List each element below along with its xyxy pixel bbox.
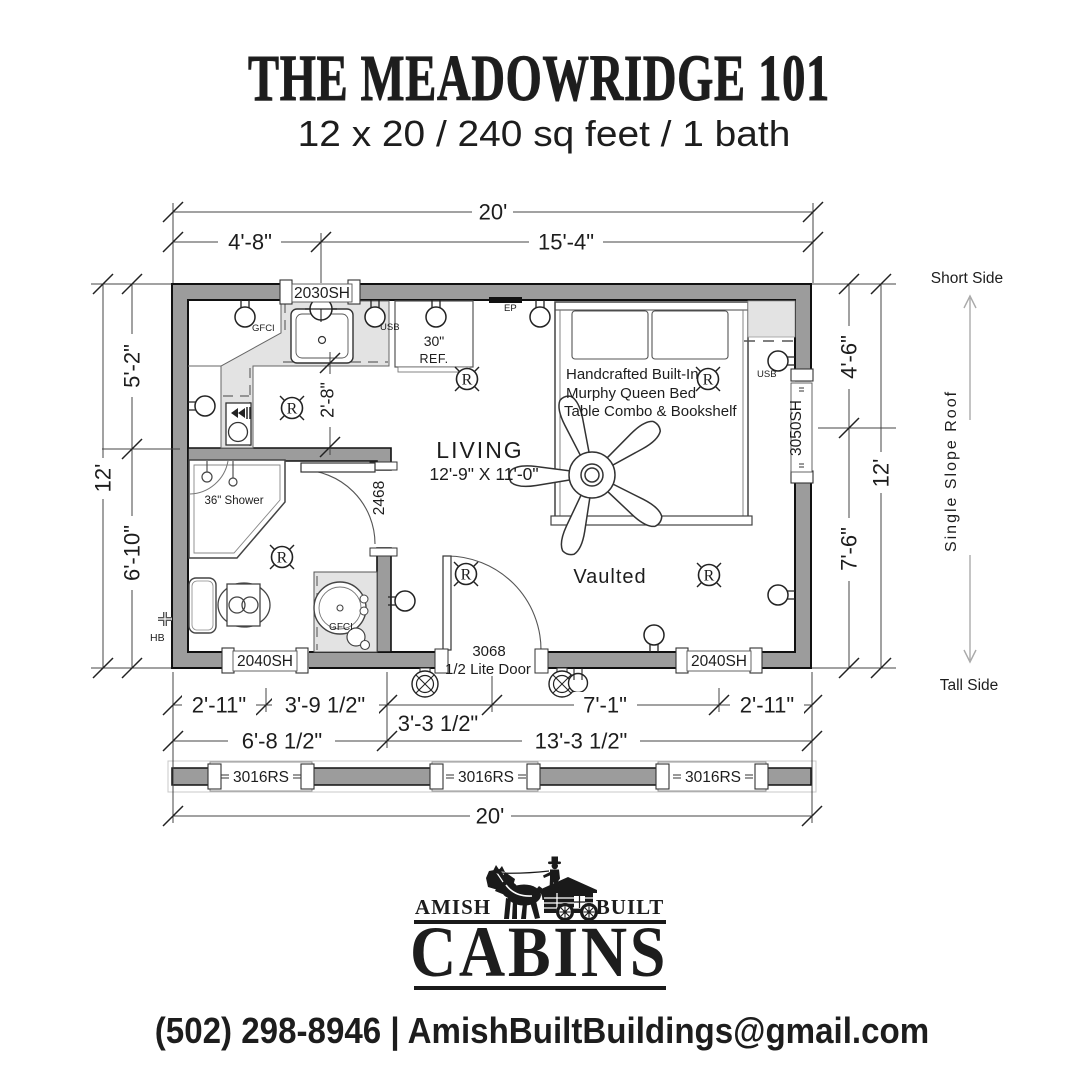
svg-text:3016RS: 3016RS <box>685 769 741 786</box>
svg-text:5'-2": 5'-2" <box>120 344 145 388</box>
svg-text:6'-8 1/2": 6'-8 1/2" <box>242 729 323 754</box>
svg-text:CABINS: CABINS <box>410 912 668 992</box>
svg-text:7'-1": 7'-1" <box>583 693 627 718</box>
svg-text:USB: USB <box>757 369 777 380</box>
svg-text:R: R <box>277 550 288 567</box>
svg-text:13'-3 1/2": 13'-3 1/2" <box>535 729 628 754</box>
svg-text:Murphy Queen Bed: Murphy Queen Bed <box>566 385 696 402</box>
svg-text:6'-10": 6'-10" <box>120 525 145 581</box>
svg-text:1/2 Lite Door: 1/2 Lite Door <box>445 661 531 678</box>
svg-text:Table Combo & Bookshelf: Table Combo & Bookshelf <box>564 403 737 420</box>
svg-text:3'-9 1/2": 3'-9 1/2" <box>285 693 366 718</box>
svg-text:20': 20' <box>476 804 505 829</box>
svg-text:20': 20' <box>479 200 508 225</box>
svg-text:USB: USB <box>380 322 400 333</box>
svg-text:THE MEADOWRIDGE 101: THE MEADOWRIDGE 101 <box>248 42 830 115</box>
svg-text:Single Slope Roof: Single Slope Roof <box>943 390 960 552</box>
svg-text:HB: HB <box>150 632 165 644</box>
svg-text:4'-6": 4'-6" <box>837 335 862 379</box>
svg-text:Tall Side: Tall Side <box>940 677 999 694</box>
svg-text:R: R <box>703 372 714 389</box>
svg-text:GFCI: GFCI <box>252 323 275 334</box>
svg-text:12': 12' <box>869 459 894 488</box>
svg-text:R: R <box>462 372 473 389</box>
svg-text:3016RS: 3016RS <box>233 769 289 786</box>
svg-text:12': 12' <box>91 464 116 493</box>
svg-text:3050SH: 3050SH <box>788 400 805 456</box>
svg-text:LIVING: LIVING <box>436 437 523 463</box>
svg-text:Short Side: Short Side <box>931 270 1003 287</box>
svg-text:12 x 20 / 240 sq feet / 1 bath: 12 x 20 / 240 sq feet / 1 bath <box>298 113 791 153</box>
svg-text:4'-8": 4'-8" <box>228 230 272 255</box>
svg-text:2'-11": 2'-11" <box>740 693 794 718</box>
svg-text:Vaulted: Vaulted <box>573 566 646 588</box>
svg-text:15'-4": 15'-4" <box>538 230 594 255</box>
svg-text:7'-6": 7'-6" <box>837 527 862 571</box>
svg-text:2040SH: 2040SH <box>237 653 293 670</box>
svg-text:R: R <box>287 401 298 418</box>
svg-text:2030SH: 2030SH <box>294 285 350 302</box>
svg-text:2'-8": 2'-8" <box>317 382 337 418</box>
svg-text:3068: 3068 <box>472 643 505 660</box>
svg-text:2040SH: 2040SH <box>691 653 747 670</box>
svg-text:3'-3 1/2": 3'-3 1/2" <box>398 711 479 736</box>
svg-text:3016RS: 3016RS <box>458 769 514 786</box>
svg-text:EP: EP <box>504 303 517 314</box>
svg-text:12'-9" X 11'-0": 12'-9" X 11'-0" <box>429 464 538 484</box>
svg-text:2468: 2468 <box>371 481 388 515</box>
svg-text:2'-11": 2'-11" <box>192 693 246 718</box>
svg-text:REF.: REF. <box>419 352 448 366</box>
svg-text:R: R <box>461 567 472 584</box>
svg-text:Handcrafted Built-In: Handcrafted Built-In <box>566 366 699 383</box>
svg-text:R: R <box>704 568 715 585</box>
svg-text:36" Shower: 36" Shower <box>204 495 263 507</box>
svg-text:30": 30" <box>424 333 445 349</box>
svg-text:GFCI: GFCI <box>329 622 353 633</box>
svg-text:(502) 298-8946 | AmishBuiltBui: (502) 298-8946 | AmishBuiltBuildings@gma… <box>155 1012 929 1052</box>
